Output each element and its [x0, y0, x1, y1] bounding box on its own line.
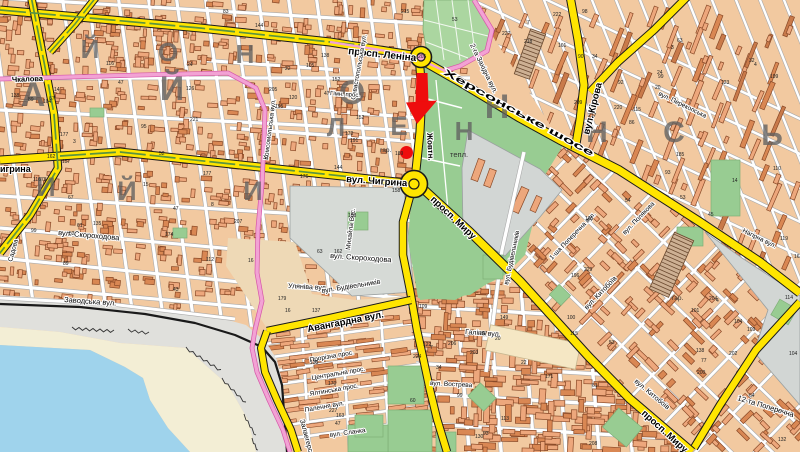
svg-text:гар.: гар. [380, 147, 391, 154]
svg-text:43: 43 [173, 287, 179, 293]
svg-text:60: 60 [410, 398, 416, 404]
svg-text:тепл.: тепл. [450, 150, 468, 159]
svg-text:208: 208 [589, 441, 598, 447]
svg-text:162: 162 [794, 254, 800, 260]
svg-text:109: 109 [419, 304, 428, 310]
svg-text:157: 157 [479, 331, 488, 337]
svg-text:222: 222 [553, 12, 562, 18]
svg-text:Л: Л [327, 112, 345, 142]
svg-text:158: 158 [392, 188, 401, 194]
svg-text:161: 161 [558, 43, 567, 49]
svg-text:83: 83 [223, 9, 229, 15]
svg-text:64: 64 [749, 393, 755, 399]
svg-text:63: 63 [317, 249, 323, 255]
svg-text:И: И [243, 176, 262, 206]
svg-text:221: 221 [190, 117, 199, 123]
svg-text:14: 14 [732, 178, 738, 184]
svg-text:196: 196 [571, 273, 580, 279]
svg-text:3: 3 [73, 139, 76, 145]
svg-text:137: 137 [312, 308, 321, 314]
svg-text:206: 206 [448, 341, 457, 347]
svg-text:229: 229 [584, 267, 593, 273]
svg-text:53: 53 [680, 195, 686, 201]
svg-text:67: 67 [68, 195, 74, 201]
svg-text:90: 90 [578, 54, 584, 60]
svg-text:14: 14 [54, 87, 60, 93]
svg-text:78: 78 [41, 177, 47, 183]
svg-text:195: 195 [275, 104, 284, 110]
svg-text:135: 135 [93, 221, 102, 227]
svg-text:104: 104 [789, 351, 798, 357]
svg-text:202: 202 [729, 351, 738, 357]
svg-text:101: 101 [691, 308, 700, 314]
svg-text:22: 22 [285, 66, 291, 72]
svg-text:3: 3 [671, 45, 674, 51]
svg-text:105: 105 [306, 63, 315, 69]
svg-text:Н: Н [455, 116, 474, 146]
svg-text:149: 149 [500, 315, 509, 321]
svg-text:185: 185 [676, 152, 685, 158]
svg-text:152: 152 [356, 115, 365, 121]
svg-text:22: 22 [521, 360, 527, 366]
svg-text:138: 138 [696, 348, 705, 354]
svg-text:191: 191 [350, 138, 359, 144]
svg-text:Й: Й [81, 34, 100, 64]
svg-text:47: 47 [173, 206, 179, 212]
svg-text:126: 126 [186, 86, 195, 92]
svg-text:170: 170 [345, 131, 354, 137]
svg-text:144: 144 [334, 165, 343, 171]
svg-text:99: 99 [457, 393, 463, 399]
svg-text:205: 205 [269, 87, 278, 93]
svg-text:152: 152 [332, 77, 341, 83]
svg-text:20: 20 [655, 85, 661, 91]
svg-text:99: 99 [31, 228, 37, 234]
svg-text:215: 215 [401, 9, 410, 15]
svg-text:200: 200 [697, 370, 706, 376]
svg-text:Чкалова: Чкалова [12, 74, 44, 84]
svg-text:104: 104 [43, 99, 52, 105]
svg-text:158: 158 [348, 213, 357, 219]
svg-text:77: 77 [701, 358, 707, 364]
svg-text:209: 209 [574, 100, 583, 106]
svg-text:Е: Е [390, 111, 407, 141]
svg-text:116: 116 [106, 61, 114, 67]
svg-text:207: 207 [234, 219, 243, 225]
svg-text:144: 144 [255, 23, 264, 29]
svg-text:227: 227 [329, 408, 338, 414]
svg-text:104: 104 [734, 319, 743, 325]
svg-text:138: 138 [11, 93, 20, 99]
svg-text:93: 93 [483, 431, 489, 437]
svg-text:8: 8 [211, 202, 214, 208]
svg-text:53: 53 [452, 17, 458, 23]
svg-text:162: 162 [334, 249, 343, 255]
svg-text:34: 34 [436, 365, 442, 371]
svg-text:95: 95 [141, 124, 147, 130]
svg-text:16: 16 [248, 258, 254, 264]
svg-text:15: 15 [143, 182, 149, 188]
svg-text:Й: Й [160, 69, 184, 108]
svg-text:112: 112 [206, 257, 214, 263]
svg-text:7: 7 [430, 345, 433, 351]
svg-text:61: 61 [592, 383, 598, 389]
svg-text:89: 89 [28, 97, 34, 103]
svg-text:220: 220 [614, 105, 623, 111]
svg-text:24: 24 [187, 62, 193, 68]
svg-text:171: 171 [545, 374, 554, 380]
svg-text:4: 4 [754, 62, 757, 68]
svg-text:86: 86 [629, 120, 635, 126]
svg-text:31: 31 [263, 155, 269, 161]
svg-text:93: 93 [665, 170, 671, 176]
svg-text:185: 185 [585, 216, 594, 222]
svg-text:4: 4 [716, 298, 719, 304]
svg-text:109: 109 [747, 327, 756, 333]
svg-text:115: 115 [570, 331, 578, 337]
svg-text:218: 218 [524, 39, 533, 45]
svg-text:203: 203 [470, 350, 479, 356]
svg-text:89: 89 [63, 261, 69, 267]
svg-text:16: 16 [285, 308, 291, 314]
svg-text:47: 47 [324, 91, 330, 97]
svg-text:С: С [663, 116, 685, 149]
svg-text:176: 176 [300, 174, 309, 180]
svg-text:177: 177 [203, 171, 212, 177]
svg-text:61: 61 [77, 223, 83, 229]
svg-text:138: 138 [310, 360, 319, 366]
svg-text:игрина: игрина [0, 164, 32, 174]
svg-text:24: 24 [657, 70, 663, 76]
svg-text:гар.: гар. [672, 295, 683, 302]
svg-text:О: О [158, 37, 178, 67]
svg-text:227: 227 [502, 31, 511, 37]
svg-text:92: 92 [618, 80, 624, 86]
svg-text:Ь: Ь [761, 119, 783, 152]
svg-text:189: 189 [395, 151, 404, 157]
svg-text:20: 20 [495, 336, 501, 342]
svg-text:179: 179 [278, 296, 287, 302]
svg-text:130: 130 [475, 434, 484, 440]
svg-text:114: 114 [785, 295, 793, 301]
svg-text:47: 47 [335, 421, 341, 427]
svg-text:205: 205 [418, 54, 427, 60]
svg-text:52: 52 [159, 151, 165, 157]
svg-text:63: 63 [677, 38, 683, 44]
svg-text:132: 132 [778, 437, 787, 443]
svg-text:Й: Й [117, 175, 136, 206]
svg-text:177: 177 [60, 132, 69, 138]
svg-text:52: 52 [69, 231, 75, 237]
svg-text:45: 45 [708, 212, 714, 218]
svg-text:199: 199 [770, 74, 779, 80]
svg-text:170: 170 [328, 381, 337, 387]
svg-text:34: 34 [592, 54, 598, 60]
svg-text:100: 100 [567, 315, 576, 321]
svg-text:120: 120 [289, 95, 298, 101]
svg-text:47: 47 [118, 80, 124, 86]
svg-text:162: 162 [47, 154, 56, 160]
svg-text:123: 123 [721, 80, 730, 86]
svg-text:119: 119 [780, 236, 788, 242]
svg-text:116: 116 [33, 177, 41, 183]
svg-text:110: 110 [773, 166, 781, 172]
svg-text:98: 98 [582, 9, 588, 15]
svg-text:Н: Н [236, 39, 255, 69]
svg-text:7: 7 [527, 20, 530, 26]
svg-text:174: 174 [165, 232, 174, 238]
svg-text:115: 115 [633, 107, 641, 113]
svg-text:138: 138 [321, 53, 330, 59]
svg-text:224: 224 [413, 354, 422, 360]
svg-text:53: 53 [609, 340, 615, 346]
svg-text:Жовтн.: Жовтн. [425, 132, 435, 161]
svg-text:217: 217 [588, 113, 597, 119]
svg-text:113: 113 [501, 416, 509, 422]
svg-text:54: 54 [625, 198, 631, 204]
svg-text:157: 157 [62, 159, 71, 165]
